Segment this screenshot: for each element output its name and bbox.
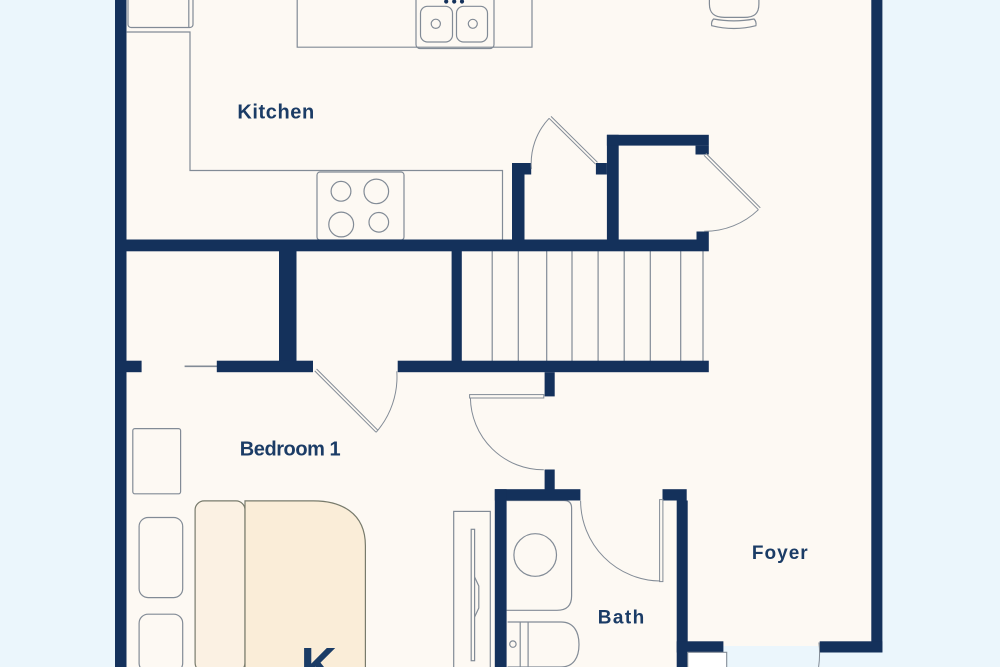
svg-text:K: K <box>301 637 337 667</box>
svg-text:Bath: Bath <box>598 608 646 629</box>
svg-text:Foyer: Foyer <box>752 543 809 564</box>
svg-text:Bedroom 1: Bedroom 1 <box>240 439 341 461</box>
svg-text:Kitchen: Kitchen <box>237 102 315 124</box>
